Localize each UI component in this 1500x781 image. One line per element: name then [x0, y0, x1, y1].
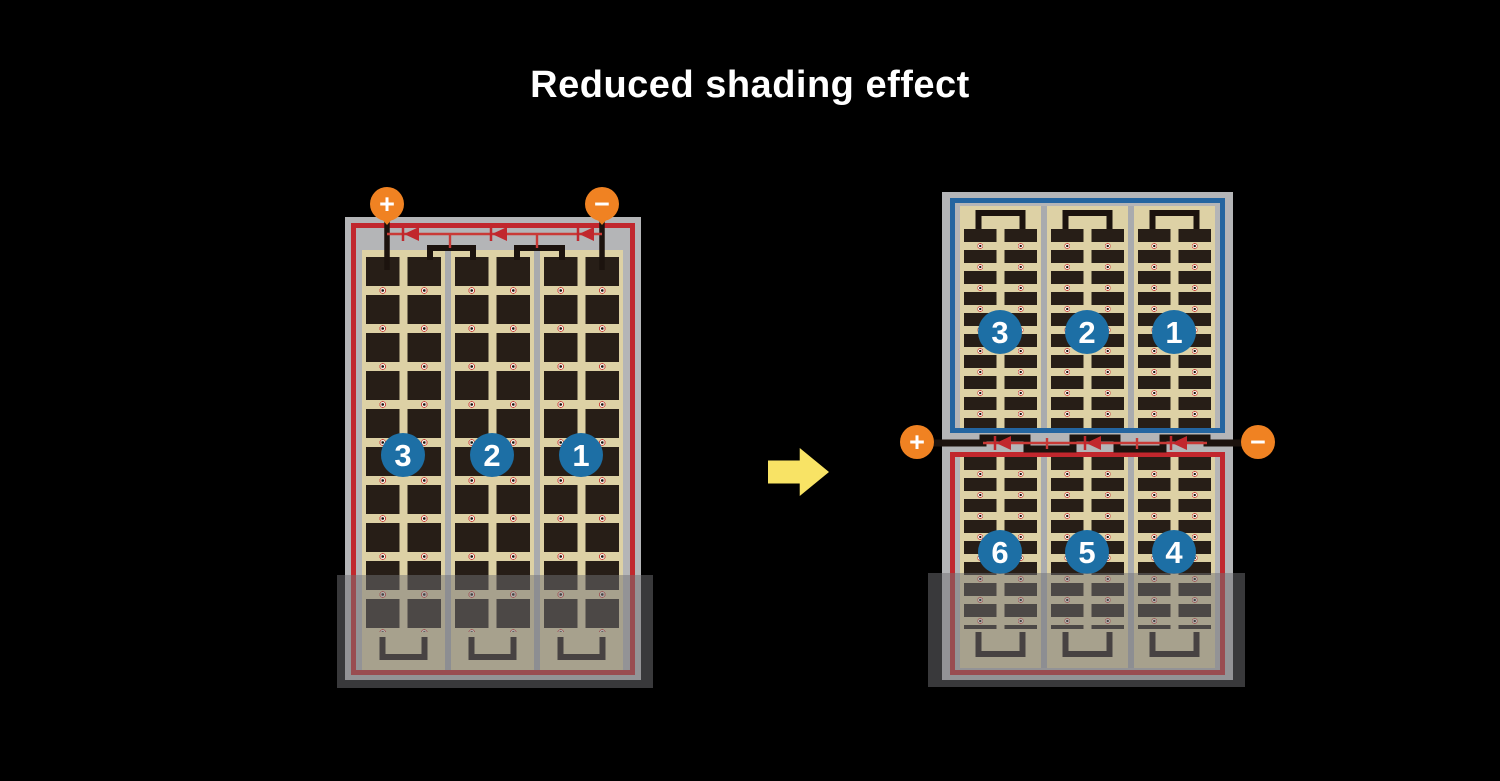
- string-number-badge: 3: [978, 310, 1022, 354]
- string-number-badge: 5: [1065, 530, 1109, 574]
- diode-icon: [403, 227, 419, 241]
- shadow-overlay: [337, 575, 653, 688]
- string-number-badge: 1: [1152, 310, 1196, 354]
- string-number-badge: 2: [470, 433, 514, 477]
- string-number-badge: 4: [1152, 530, 1196, 574]
- bypass-diode-string: [387, 227, 602, 248]
- positive-terminal: +: [900, 425, 934, 459]
- negative-terminal: −: [585, 187, 619, 221]
- top-busbar-connectors: [430, 248, 562, 260]
- negative-terminal: −: [1241, 425, 1275, 459]
- string-number-badge: 3: [381, 433, 425, 477]
- string-number-badge: 6: [978, 530, 1022, 574]
- reduced-shading-diagram: Reduced shading effect: [0, 0, 1500, 781]
- shadow-overlay: [928, 573, 1245, 687]
- string-number-badge: 1: [559, 433, 603, 477]
- right-arrow-icon: [768, 448, 829, 496]
- diagram-title: Reduced shading effect: [0, 64, 1500, 107]
- positive-terminal: +: [370, 187, 404, 221]
- top-busbar-connectors: [979, 213, 1197, 229]
- diode-icon: [578, 227, 594, 241]
- string-number-badge: 2: [1065, 310, 1109, 354]
- diode-icon: [491, 227, 507, 241]
